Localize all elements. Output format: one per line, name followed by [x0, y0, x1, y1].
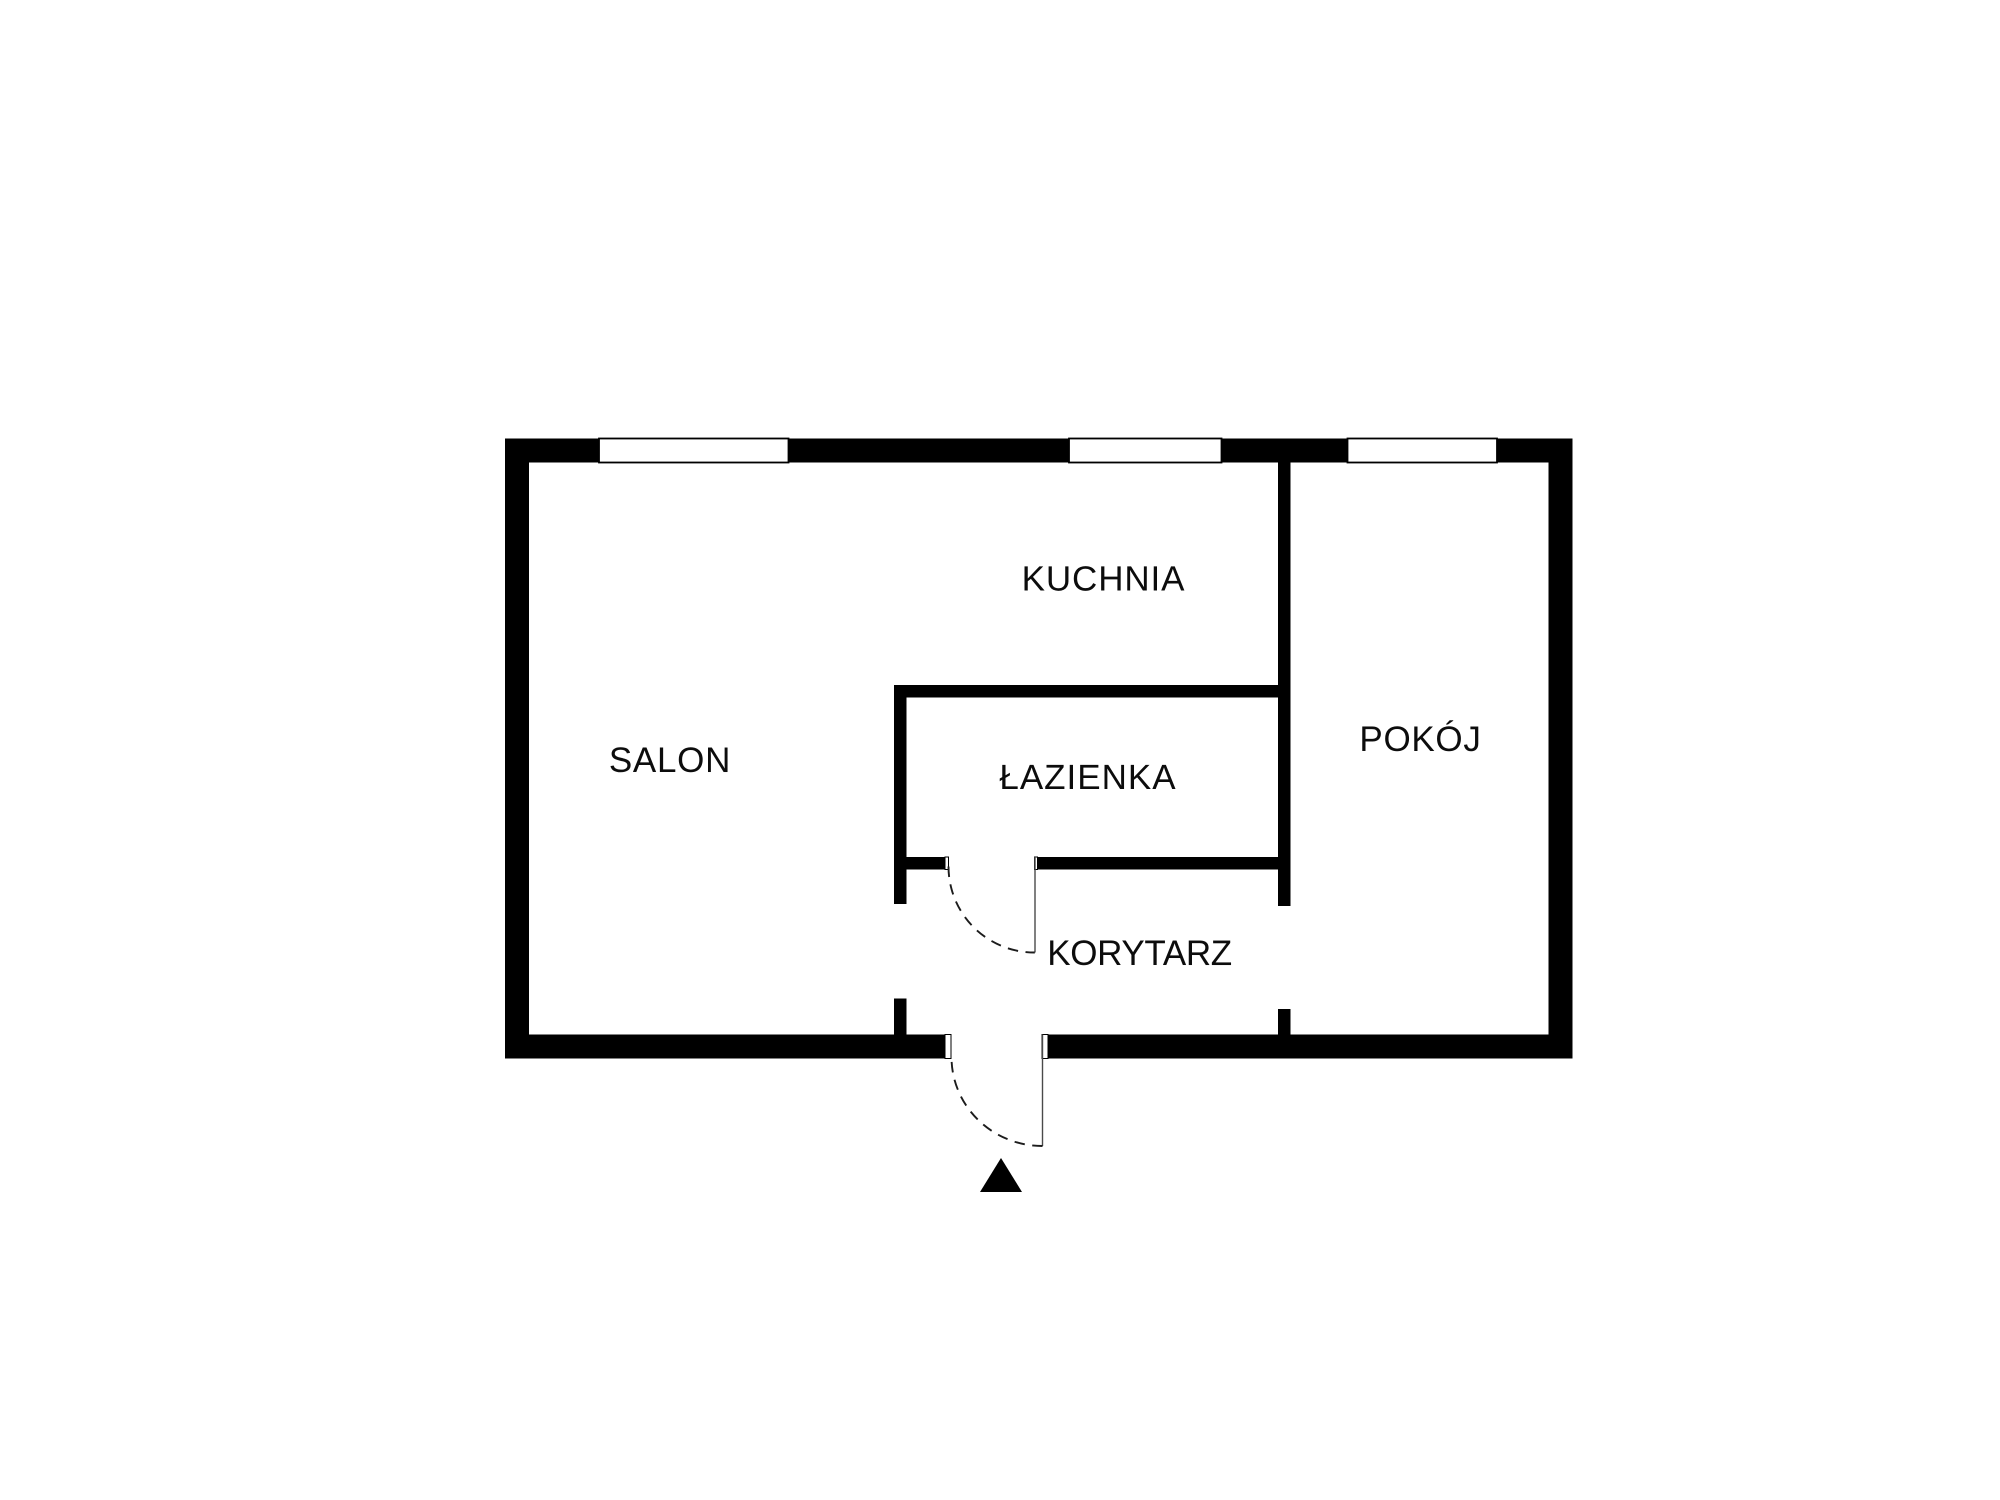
svg-text:KUCHNIA: KUCHNIA: [1022, 559, 1186, 598]
svg-text:ŁAZIENKA: ŁAZIENKA: [999, 758, 1176, 797]
svg-text:SALON: SALON: [609, 741, 731, 780]
svg-text:POKÓJ: POKÓJ: [1359, 720, 1481, 759]
svg-text:KORYTARZ: KORYTARZ: [1047, 934, 1232, 973]
